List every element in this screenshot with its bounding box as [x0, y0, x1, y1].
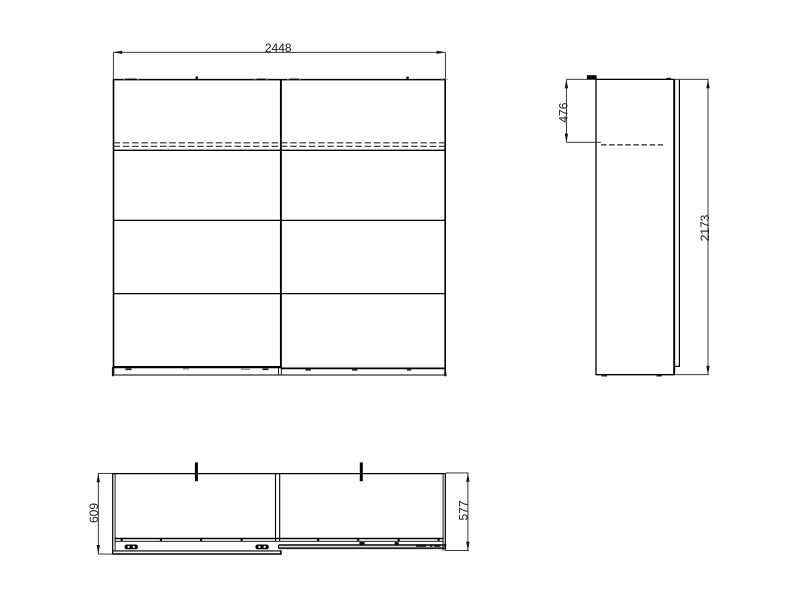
- svg-text:609: 609: [87, 503, 101, 523]
- svg-text:476: 476: [556, 102, 570, 122]
- svg-text:577: 577: [457, 500, 471, 520]
- svg-text:2448: 2448: [265, 41, 292, 55]
- svg-text:2173: 2173: [698, 214, 712, 241]
